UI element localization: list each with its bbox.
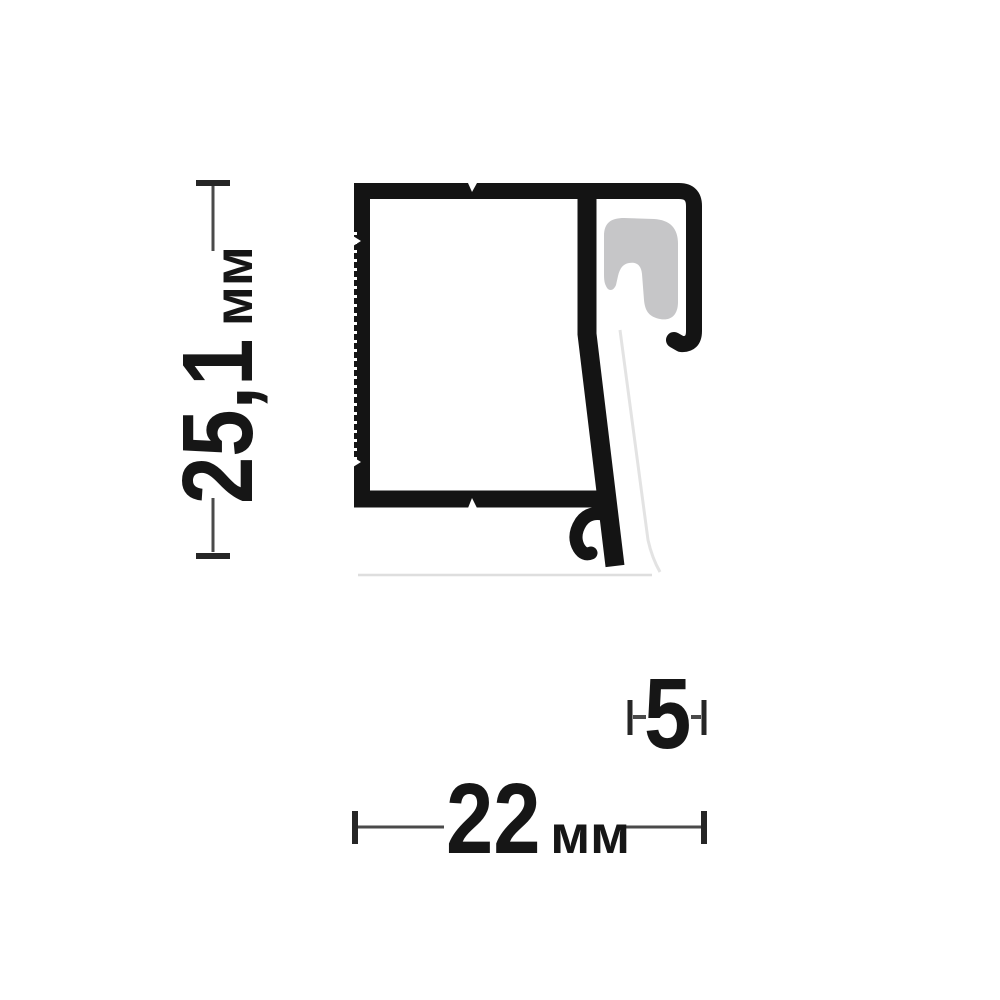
height-dimension-label: 25,1 мм (168, 250, 268, 500)
width-dimension-value: 22 (446, 769, 541, 869)
profile-surface-marks (353, 183, 477, 508)
height-dimension-unit: мм (207, 246, 261, 326)
hook-dimension-value: 5 (644, 664, 691, 764)
width-dimension-label: 22 мм (446, 769, 630, 869)
seal-lip-edge (620, 330, 660, 572)
height-dimension-value: 25,1 (168, 338, 268, 503)
gasket-insert (604, 218, 678, 319)
dimension-ticks (196, 183, 704, 844)
hook-dimension-label: 5 (644, 664, 700, 764)
width-dimension-unit: мм (550, 808, 630, 862)
drawing-canvas: 25,1 мм 22 мм 5 (0, 0, 1000, 1000)
